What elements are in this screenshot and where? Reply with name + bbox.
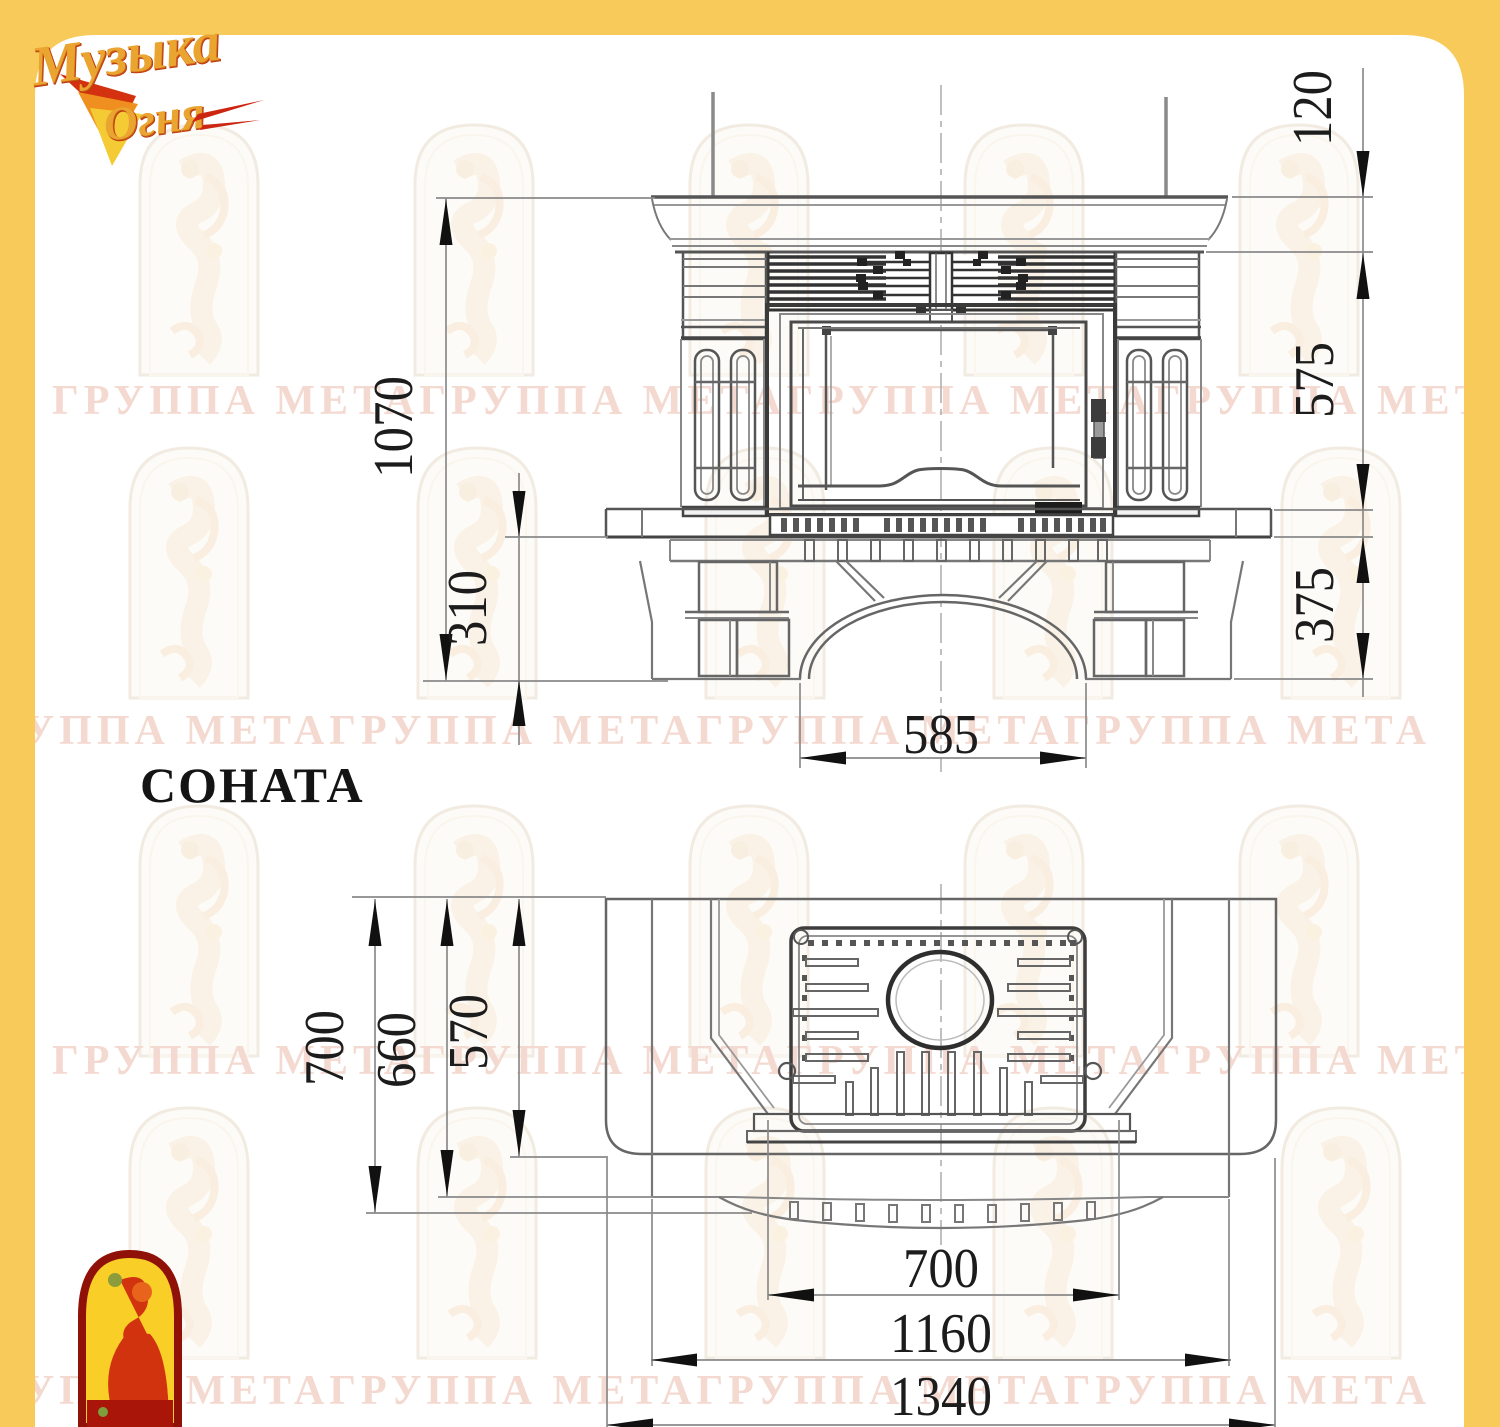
svg-text:585: 585	[903, 704, 979, 766]
svg-text:575: 575	[1284, 342, 1346, 418]
svg-text:СОНАТА: СОНАТА	[140, 757, 365, 813]
svg-text:1070: 1070	[363, 376, 425, 478]
svg-text:700: 700	[294, 1010, 356, 1086]
svg-text:ГРУППА МЕТАГРУППА МЕТАГРУППА М: ГРУППА МЕТАГРУППА МЕТАГРУППА МЕТАГРУППА …	[52, 378, 1500, 424]
svg-text:570: 570	[438, 994, 500, 1070]
svg-text:ГРУППА МЕТАГРУППА МЕТАГРУППА М: ГРУППА МЕТАГРУППА МЕТАГРУППА МЕТАГРУППА …	[0, 708, 1431, 754]
svg-text:ГРУППА МЕТАГРУППА МЕТАГРУППА М: ГРУППА МЕТАГРУППА МЕТАГРУППА МЕТАГРУППА …	[0, 1368, 1431, 1414]
svg-text:1160: 1160	[890, 1303, 992, 1365]
svg-text:700: 700	[903, 1238, 979, 1300]
svg-text:1340: 1340	[890, 1366, 992, 1427]
svg-text:ГРУППА МЕТАГРУППА МЕТАГРУППА М: ГРУППА МЕТАГРУППА МЕТАГРУППА МЕТАГРУППА …	[52, 1038, 1500, 1084]
svg-text:375: 375	[1284, 567, 1346, 643]
svg-text:660: 660	[366, 1012, 428, 1088]
svg-text:310: 310	[437, 570, 499, 646]
svg-text:120: 120	[1282, 70, 1344, 146]
